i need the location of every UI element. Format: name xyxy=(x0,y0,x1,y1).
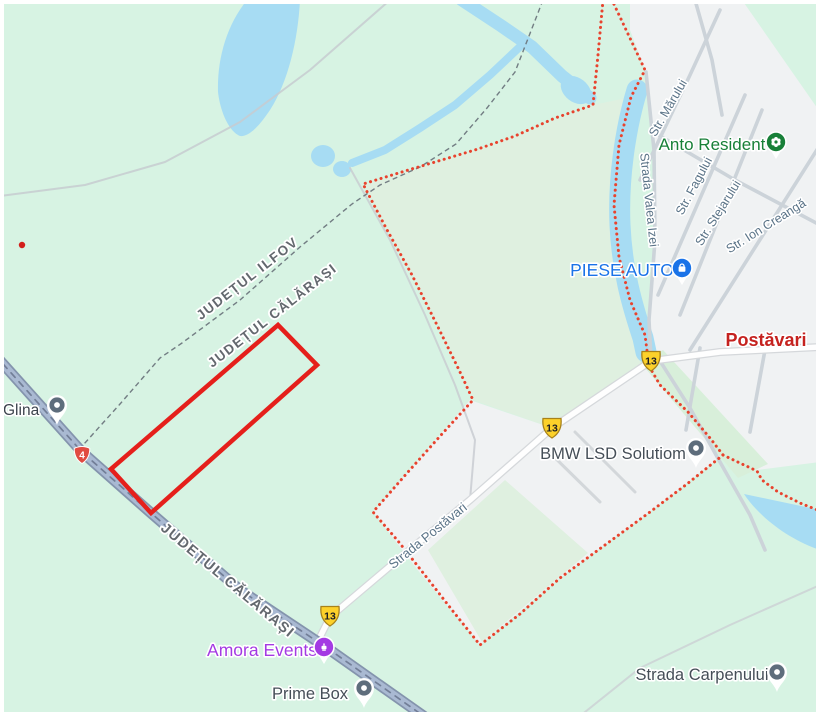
poi-label-anto-resident[interactable]: Anto Resident xyxy=(659,135,766,154)
poi-label-glina[interactable]: Glina xyxy=(3,402,40,419)
pin-hole xyxy=(54,402,60,408)
svg-text:13: 13 xyxy=(546,423,558,435)
poi-label-prime-box[interactable]: Prime Box xyxy=(272,685,349,703)
svg-text:13: 13 xyxy=(645,356,657,368)
poi-label-piese-auto[interactable]: PIESE AUTO xyxy=(570,260,674,280)
pin-hole xyxy=(361,685,367,691)
poi-label-amora-events[interactable]: Amora Events xyxy=(207,640,317,660)
map-canvas[interactable]: JUDEȚUL ILFOV JUDEȚUL CĂLĂRAȘI JUDEȚUL C… xyxy=(0,0,820,720)
red-dot-marker xyxy=(19,242,25,248)
poi-label-strada-carpenului[interactable]: Strada Carpenului xyxy=(636,666,769,684)
svg-text:4: 4 xyxy=(79,451,85,462)
pin-hole xyxy=(774,669,780,675)
locality-label-postavari[interactable]: Postăvari xyxy=(725,330,806,350)
pin-hole xyxy=(693,445,699,451)
pond-small-1 xyxy=(311,145,335,167)
poi-label-bmw-lsd[interactable]: BMW LSD Solutiom xyxy=(540,445,686,463)
svg-text:13: 13 xyxy=(324,611,336,623)
